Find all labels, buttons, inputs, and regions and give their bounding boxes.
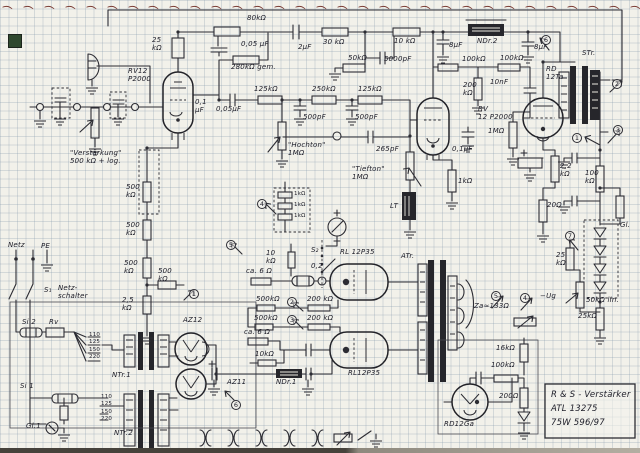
label-verst: "Verstärkung" 500 kΩ + log. <box>70 150 122 165</box>
label-r500kv: 500 kΩ <box>124 260 138 275</box>
label-netzschalter: Netz- schalter <box>58 285 88 300</box>
label-r500kh: 500kΩ <box>254 315 278 323</box>
terminal-t2: 2 <box>287 297 297 307</box>
terminal-t2: 2 <box>612 79 622 89</box>
label-line1: R & S - Verstärker <box>551 390 631 400</box>
label-r1k_lad: 1kΩ <box>294 202 306 209</box>
label-r22k: 2,2 kΩ <box>560 163 572 178</box>
label-r25_2: 2,5 kΩ <box>122 297 134 312</box>
terminal-t3: 3 <box>287 315 297 325</box>
label-r100k4: 100kΩ <box>491 362 515 370</box>
label-az12: AZ12 <box>183 317 202 325</box>
terminal-t3: 3 <box>613 125 623 135</box>
label-s1: S₁ <box>44 287 52 295</box>
label-rv: Rv <box>49 319 58 327</box>
label-ug: −Ug <box>540 293 556 301</box>
terminal-t4: 4 <box>520 293 530 303</box>
label-rl12_2: RL12P35 <box>348 370 380 378</box>
label-rv12_2: RV 12 P2000 <box>478 106 513 121</box>
label-r125: 125kΩ <box>254 86 278 94</box>
terminal-t6: 6 <box>541 35 551 45</box>
green-sticker <box>8 34 22 48</box>
label-r16k: 16kΩ <box>496 345 515 353</box>
label-c01_2: 0,1μF <box>452 146 473 154</box>
label-ntr1: NTr.1 <box>112 372 131 380</box>
terminal-t7: 7 <box>565 231 575 241</box>
terminal-t1: 1 <box>572 133 582 143</box>
label-rl12_1: RL 12P35 <box>340 249 375 257</box>
label-a02: 0,2 <box>311 263 323 271</box>
label-r500kv: 500 kΩ <box>158 268 172 283</box>
label-r500kv: 500 kΩ <box>126 184 140 199</box>
label-tiefton: "Tiefton" 1MΩ <box>352 166 385 181</box>
label-r200o: 200Ω <box>499 393 519 401</box>
label-ndr1: NDr.1 <box>276 379 297 387</box>
labels-layer: RV12 P200025 kΩ"Verstärkung" 500 kΩ + lo… <box>0 0 640 453</box>
label-r10k2: 10 kΩ <box>266 250 276 265</box>
label-c5000: 5000pF <box>384 56 411 64</box>
label-c01_v1: 0,1 μF <box>195 99 207 114</box>
label-taps: 110 125 150 220 <box>101 394 112 424</box>
label-rd12ta: RD 12Ta <box>546 66 564 81</box>
label-si2: Si 2 <box>22 319 36 327</box>
label-rv12_1: RV12 P2000 <box>128 68 151 83</box>
label-str: STr. <box>582 50 595 58</box>
label-r1k_lad: 1kΩ <box>294 191 306 198</box>
label-c265: 265pF <box>376 146 399 154</box>
label-rd12ga: RD12Ga <box>444 421 474 429</box>
label-r50klin: 50kΩ lin. <box>586 297 619 305</box>
label-r50k1: 50kΩ <box>348 55 367 63</box>
label-s2: S₂ <box>311 247 319 255</box>
label-ca6: ca. 6 Ω <box>246 268 272 276</box>
label-ca6: ca. 6 Ω <box>244 329 270 337</box>
terminal-t1: 1 <box>189 289 199 299</box>
label-r250k: 250kΩ <box>312 86 336 94</box>
label-r1m: 1MΩ <box>488 128 504 136</box>
label-ndr2: NDr.2 <box>477 38 498 46</box>
desk-edge <box>0 448 640 453</box>
label-r280k: 280kΩ gem. <box>231 64 276 72</box>
label-c500: 500pF <box>303 114 326 122</box>
label-r1k1: 1kΩ <box>458 178 472 186</box>
label-r100k3: 100 kΩ <box>585 170 599 185</box>
label-c005_2: 0,05μF <box>216 106 241 114</box>
label-r25k: 25 kΩ <box>152 37 162 52</box>
label-r30k: 30 kΩ <box>323 39 345 47</box>
label-gl: Gl. <box>620 222 630 230</box>
label-hochton: "Hochton" 1MΩ <box>288 142 326 157</box>
label-r20: 20Ω <box>547 202 562 210</box>
label-r200kh: 200 kΩ <box>307 296 333 304</box>
label-pe: PE <box>41 243 50 251</box>
label-ntr2: NTr.2 <box>114 430 133 438</box>
label-r10k1: 10 kΩ <box>394 38 416 46</box>
label-c005_1: 0,05 μF <box>241 41 269 49</box>
label-r100k: 100kΩ <box>500 55 524 63</box>
label-gl1: Gl.1 <box>26 423 41 431</box>
label-za: Za≈133Ω <box>474 303 509 311</box>
label-c2u: 2μF <box>298 44 312 52</box>
label-line3: 75W 596/97 <box>551 418 605 428</box>
label-r100k: 100kΩ <box>462 56 486 64</box>
label-az11: AZ11 <box>227 379 246 387</box>
label-r25k3: 25 kΩ <box>556 252 566 267</box>
label-taps: 110 125 150 220 <box>89 332 100 362</box>
terminal-t4: 4 <box>257 199 267 209</box>
label-c500: 500pF <box>355 114 378 122</box>
label-c8: 8μF <box>449 42 463 50</box>
label-c8: 8μF <box>534 44 548 52</box>
label-atr: ATr. <box>401 253 414 261</box>
label-r1k_lad: 1kΩ <box>294 213 306 220</box>
label-si1: Si 1 <box>20 383 34 391</box>
label-r80k: 80kΩ <box>247 15 266 23</box>
label-r200k1: 200 kΩ <box>463 82 477 97</box>
label-netz: Netz <box>8 242 25 250</box>
notebook-page: ((((((((((((((((((((((((((((((( <box>0 0 640 453</box>
terminal-t5: 5 <box>226 240 236 250</box>
label-r500kv: 500 kΩ <box>126 222 140 237</box>
label-r125: 125kΩ <box>358 86 382 94</box>
label-r25k4: 25kΩ <box>578 313 597 321</box>
terminal-t5: 5 <box>491 291 501 301</box>
label-r200kh: 200 kΩ <box>307 315 333 323</box>
label-r500kh: 500kΩ <box>256 296 280 304</box>
label-lt: LT <box>390 203 398 211</box>
label-r10k3: 10kΩ <box>255 351 274 359</box>
label-c10n: 10nF <box>490 79 508 87</box>
label-line2: ATL 13275 <box>551 404 598 414</box>
terminal-t6: 6 <box>231 400 241 410</box>
